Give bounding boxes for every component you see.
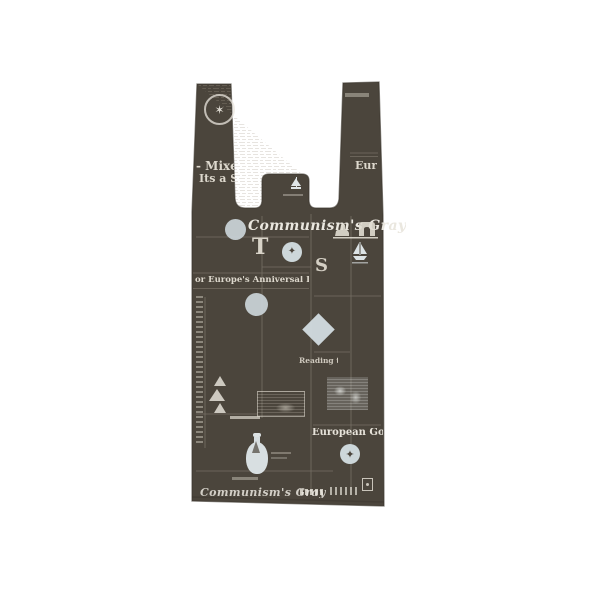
stamp-dot: [366, 483, 369, 486]
micro-headline-bar: [230, 416, 260, 419]
handle-right-micro-headline: [345, 93, 369, 97]
sailboat-icon: [352, 241, 368, 265]
engraving-frame: [257, 391, 305, 417]
star-seal-icon: ✶: [204, 94, 235, 125]
lower-right-headline: European Good Se: [312, 428, 383, 438]
vertical-caption-strip: [196, 296, 203, 446]
ship-in-bottle-icon: [245, 433, 269, 475]
sphinx-and-arch-icon: [333, 220, 379, 240]
eagle-seal-glyph: ✦: [288, 247, 296, 257]
bottle-sail: [252, 441, 260, 453]
star-seal-glyph: ✶: [214, 104, 224, 116]
handle-left-headline-top: - Mixed: [196, 160, 234, 172]
mountains-icon: [209, 389, 225, 401]
full-moon-icon: [245, 293, 268, 316]
full-moon-icon: [225, 219, 246, 240]
diamond-icon: [302, 313, 335, 346]
left-column-headline: or Europe's Anniversal Drive: [195, 276, 309, 285]
eagle-seal-icon: ✦: [340, 444, 360, 464]
micro-headline-bar: [232, 477, 258, 480]
tab-caption-bar: [283, 194, 303, 196]
masthead-headline: Communism's Gray: [248, 219, 406, 233]
handle-left-headline-bottom: Its a Su: [199, 173, 235, 184]
drop-cap-s: S: [315, 257, 328, 275]
mountains-icon: [214, 376, 226, 386]
right-column-headline: Reading the Skies: [299, 357, 338, 365]
eagle-seal-glyph: ✦: [345, 449, 354, 460]
drop-cap-t: T: [252, 236, 268, 258]
caption-bar: [271, 457, 287, 459]
handle-right-headline: Eur: [355, 160, 377, 171]
illustration: [327, 377, 368, 410]
barcode-marks: [330, 487, 360, 495]
bag-print-overlay: ✶ - Mixed Its a Su Eur Communism's Gray: [0, 0, 600, 600]
sailboat-icon: [290, 176, 303, 192]
bottom-script-headline: Communism's Gray: [200, 487, 326, 498]
mountains-icon: [214, 403, 226, 413]
eagle-seal-icon: ✦: [282, 242, 302, 262]
postage-stamp-icon: [362, 478, 373, 491]
caption-bar: [271, 452, 291, 454]
product-photo-canvas: ✶ - Mixed Its a Su Eur Communism's Gray: [0, 0, 600, 600]
